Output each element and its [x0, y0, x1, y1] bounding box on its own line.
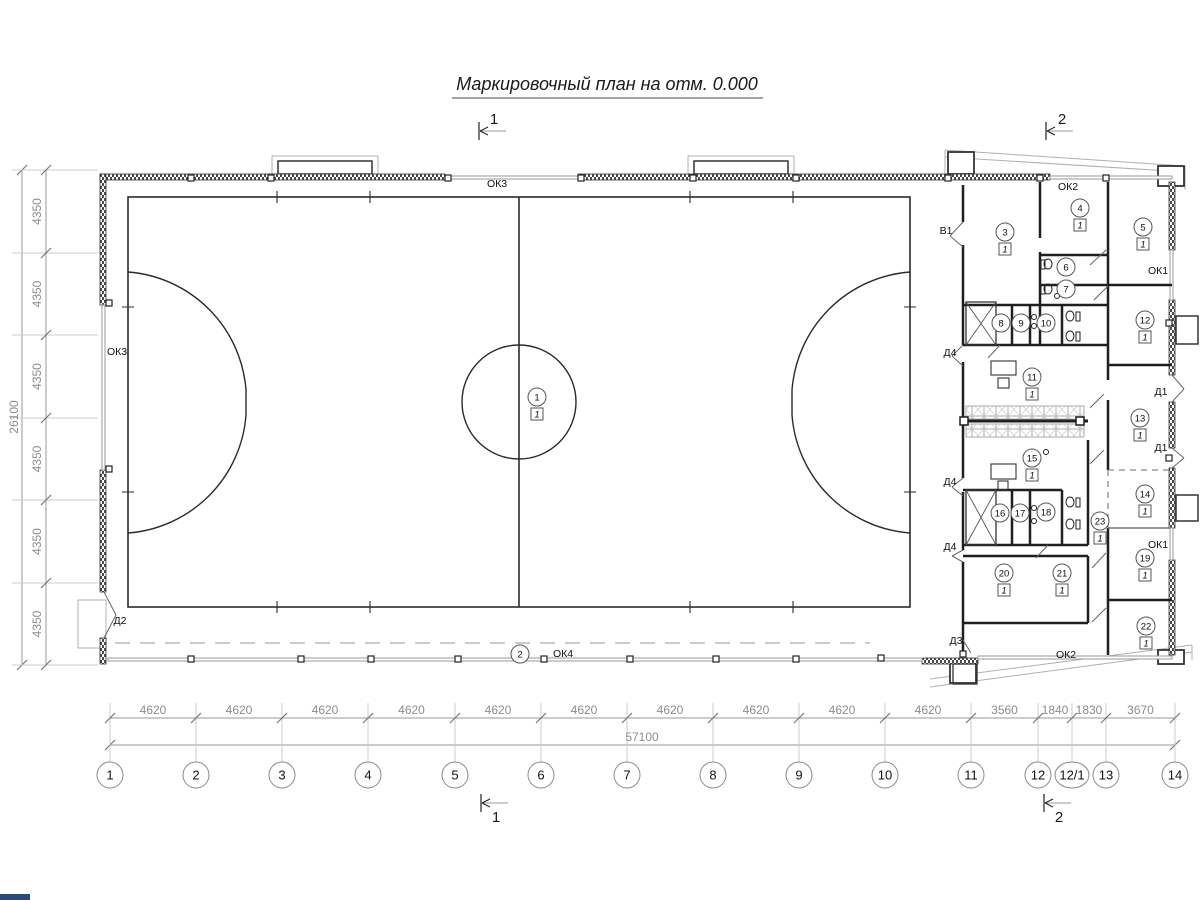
- dim-value: 1840: [1042, 703, 1069, 717]
- room-number: 23: [1095, 516, 1106, 527]
- room-number: 1: [534, 392, 539, 403]
- opening-label-д3: Д3: [950, 635, 963, 647]
- floor-type-mark: 1: [1142, 333, 1147, 344]
- room-number: 11: [1027, 372, 1037, 383]
- column-mark: [188, 175, 194, 181]
- floor-type-mark: 1: [1077, 221, 1082, 232]
- room-number: 20: [999, 568, 1010, 579]
- opening-label-ок2: ОК2: [1058, 181, 1078, 193]
- section-marker-2-top: 2: [1046, 111, 1073, 140]
- column-mark: [455, 656, 461, 662]
- dim-value: 4620: [398, 703, 425, 717]
- floor-type-mark: 1: [1029, 390, 1034, 401]
- room-number: 12: [1140, 315, 1151, 326]
- dim-value: 4350: [30, 198, 44, 225]
- column-mark: [368, 656, 374, 662]
- axis-label: 7: [623, 768, 630, 783]
- axis-label: 12: [1031, 768, 1045, 783]
- room-number: 3: [1002, 227, 1007, 238]
- floor-type-mark: 1: [1097, 534, 1102, 545]
- column-mark: [793, 656, 799, 662]
- column-mark: [578, 175, 584, 181]
- axis-label: 12/1: [1059, 768, 1084, 783]
- dim-value: 1830: [1076, 703, 1103, 717]
- dim-value: 4620: [312, 703, 339, 717]
- column-mark: [106, 300, 112, 306]
- column-mark: [268, 175, 274, 181]
- floor-type-mark: 1: [1140, 240, 1145, 251]
- axis-label: 10: [878, 768, 892, 783]
- axis-label: 5: [451, 768, 458, 783]
- section-marker-1-bottom: 1: [481, 794, 508, 826]
- dim-value: 4350: [30, 445, 44, 472]
- column-mark: [945, 175, 951, 181]
- opening-label-ок3: ОК3: [107, 346, 127, 358]
- axis-label: 8: [709, 768, 716, 783]
- floor-type-mark: 1: [534, 410, 539, 421]
- floor-type-mark: 1: [1143, 639, 1148, 650]
- drawing-sheet: { "title": "Маркировочный план на отм. 0…: [0, 0, 1200, 900]
- column-mark: [690, 175, 696, 181]
- column-mark: [106, 466, 112, 472]
- axis-label: 4: [364, 768, 371, 783]
- room-number: 18: [1041, 507, 1052, 518]
- section-number: 1: [490, 111, 498, 128]
- column-mark: [878, 655, 884, 661]
- column-mark: [960, 651, 966, 657]
- room-number: 14: [1140, 489, 1151, 500]
- dim-value: 4350: [30, 363, 44, 390]
- column-mark: [541, 656, 547, 662]
- dim-value: 4350: [30, 280, 44, 307]
- dim-value: 4620: [226, 703, 253, 717]
- opening-label-ок4: ОК4: [553, 648, 573, 660]
- room-number: 16: [995, 508, 1006, 519]
- entrance-canopies: [272, 156, 794, 174]
- dim-value: 4620: [743, 703, 770, 717]
- room-number: 21: [1057, 568, 1068, 579]
- dim-value: 4350: [30, 610, 44, 637]
- section-number: 1: [492, 809, 500, 826]
- opening-label-ок2: ОК2: [1056, 649, 1076, 661]
- opening-label-в1: В1: [940, 225, 953, 237]
- column-mark: [445, 175, 451, 181]
- floor-type-mark: 1: [1029, 471, 1034, 482]
- page-title: Маркировочный план на отм. 0.000: [456, 74, 758, 94]
- dim-value: 4620: [915, 703, 942, 717]
- axis-label: 2: [192, 768, 199, 783]
- opening-label-д4: Д4: [944, 347, 957, 359]
- exterior-porches: [78, 316, 1198, 648]
- opening-label-д4: Д4: [944, 476, 957, 488]
- room-number: 22: [1141, 621, 1152, 632]
- axis-label: 1: [106, 768, 113, 783]
- room-number: 9: [1018, 318, 1023, 329]
- section-marker-2-bottom: 2: [1044, 794, 1071, 826]
- dim-value: 4620: [657, 703, 684, 717]
- opening-label-д1: Д1: [1155, 386, 1168, 398]
- room-number: 6: [1063, 262, 1068, 273]
- column-mark: [1166, 455, 1172, 461]
- dim-value: 4620: [140, 703, 167, 717]
- dim-value: 4620: [829, 703, 856, 717]
- opening-label-д4: Д4: [944, 541, 957, 553]
- ventilation-shafts: [966, 302, 996, 545]
- dim-value: 4620: [571, 703, 598, 717]
- axis-label: 11: [964, 768, 978, 783]
- axis-label: 3: [278, 768, 285, 783]
- room-number: 5: [1140, 222, 1145, 233]
- column-mark: [1037, 175, 1043, 181]
- floor-type-mark: 1: [1059, 586, 1064, 597]
- opening-label-ок1: ОК1: [1148, 265, 1168, 277]
- column-mark: [188, 656, 194, 662]
- dim-value: 4350: [30, 528, 44, 555]
- room-number: 7: [1063, 284, 1068, 295]
- section-number: 2: [1058, 111, 1066, 128]
- room-number: 2: [517, 649, 522, 660]
- floor-type-mark: 1: [1002, 245, 1007, 256]
- room-number: 8: [998, 318, 1003, 329]
- room-number: 4: [1077, 203, 1082, 214]
- dim-total-horizontal: 57100: [625, 730, 659, 744]
- column-mark: [793, 175, 799, 181]
- floor-type-mark: 1: [1142, 571, 1147, 582]
- opening-label-ок1: ОК1: [1148, 539, 1168, 551]
- room-number: 19: [1140, 553, 1151, 564]
- column-mark: [298, 656, 304, 662]
- dim-total-vertical: 26100: [7, 400, 21, 434]
- column-mark: [713, 656, 719, 662]
- sports-field: [122, 191, 916, 613]
- opening-label-д1: Д1: [1155, 442, 1168, 454]
- axis-label: 9: [795, 768, 802, 783]
- floor-type-mark: 1: [1142, 507, 1147, 518]
- opening-label-д2: Д2: [114, 615, 127, 627]
- dim-value: 4620: [485, 703, 512, 717]
- screen-edge-artifact: [0, 894, 30, 900]
- floor-type-mark: 1: [1001, 586, 1006, 597]
- floor-type-mark: 1: [1137, 431, 1142, 442]
- door-swings: [104, 222, 1184, 653]
- axis-grid: 12345678910111212/11314: [97, 762, 1188, 788]
- column-mark: [1166, 320, 1172, 326]
- section-marker-1-top: 1: [479, 111, 506, 140]
- axis-label: 6: [537, 768, 544, 783]
- column-mark: [1103, 175, 1109, 181]
- section-number: 2: [1055, 809, 1063, 826]
- dim-value: 3670: [1127, 703, 1154, 717]
- locker-band: [960, 406, 1088, 437]
- room-number: 10: [1041, 318, 1052, 329]
- column-mark: [627, 656, 633, 662]
- room-number: 17: [1015, 508, 1026, 519]
- room-number: 15: [1027, 453, 1038, 464]
- room-number: 13: [1135, 413, 1146, 424]
- axis-label: 14: [1168, 768, 1182, 783]
- dim-value: 3560: [991, 703, 1018, 717]
- opening-label-ок3: ОК3: [487, 178, 507, 190]
- floor-plan-canvas: Маркировочный план на отм. 0.000 1 1 2 2: [0, 0, 1200, 900]
- axis-label: 13: [1099, 768, 1113, 783]
